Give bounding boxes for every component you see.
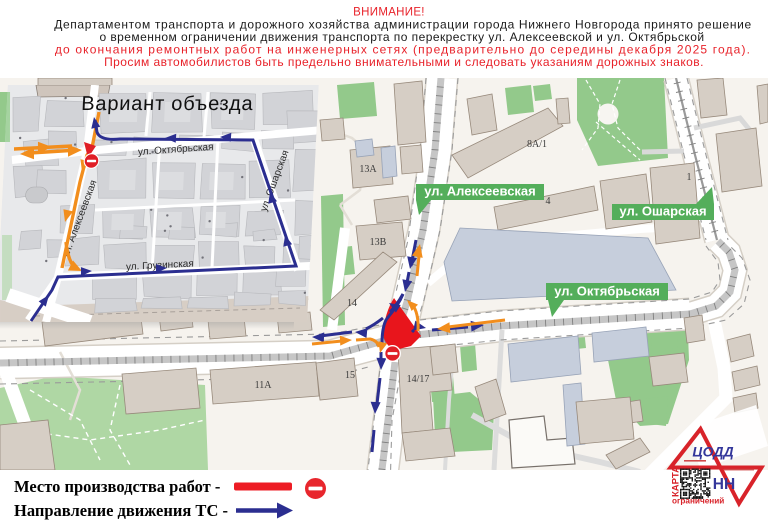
svg-text:Направление движения ТС -: Направление движения ТС - — [14, 501, 228, 520]
svg-text:8А/1: 8А/1 — [527, 139, 547, 150]
svg-text:ул. Октябрьская: ул. Октябрьская — [554, 284, 660, 299]
svg-text:Место производства работ -: Место производства работ - — [14, 477, 220, 496]
svg-text:ЦОДД: ЦОДД — [692, 444, 733, 460]
svg-text:11А: 11А — [255, 380, 273, 391]
svg-text:14: 14 — [347, 298, 357, 309]
svg-text:КАРТА: КАРТА — [671, 466, 682, 497]
svg-text:4: 4 — [546, 196, 551, 207]
svg-text:НН: НН — [713, 476, 735, 493]
svg-text:13А: 13А — [359, 164, 377, 175]
svg-text:14/17: 14/17 — [407, 374, 430, 385]
svg-text:15: 15 — [345, 370, 355, 381]
svg-text:Вариант объезда: Вариант объезда — [81, 93, 254, 115]
svg-text:13В: 13В — [370, 237, 387, 248]
svg-text:1: 1 — [687, 172, 692, 183]
svg-text:Просим автомобилистов быть пре: Просим автомобилистов быть предельно вни… — [104, 55, 704, 69]
svg-text:ограничений: ограничений — [672, 497, 724, 506]
svg-text:ул. Алексеевская: ул. Алексеевская — [424, 184, 536, 199]
svg-text:ул. Ошарская: ул. Ошарская — [619, 204, 706, 219]
